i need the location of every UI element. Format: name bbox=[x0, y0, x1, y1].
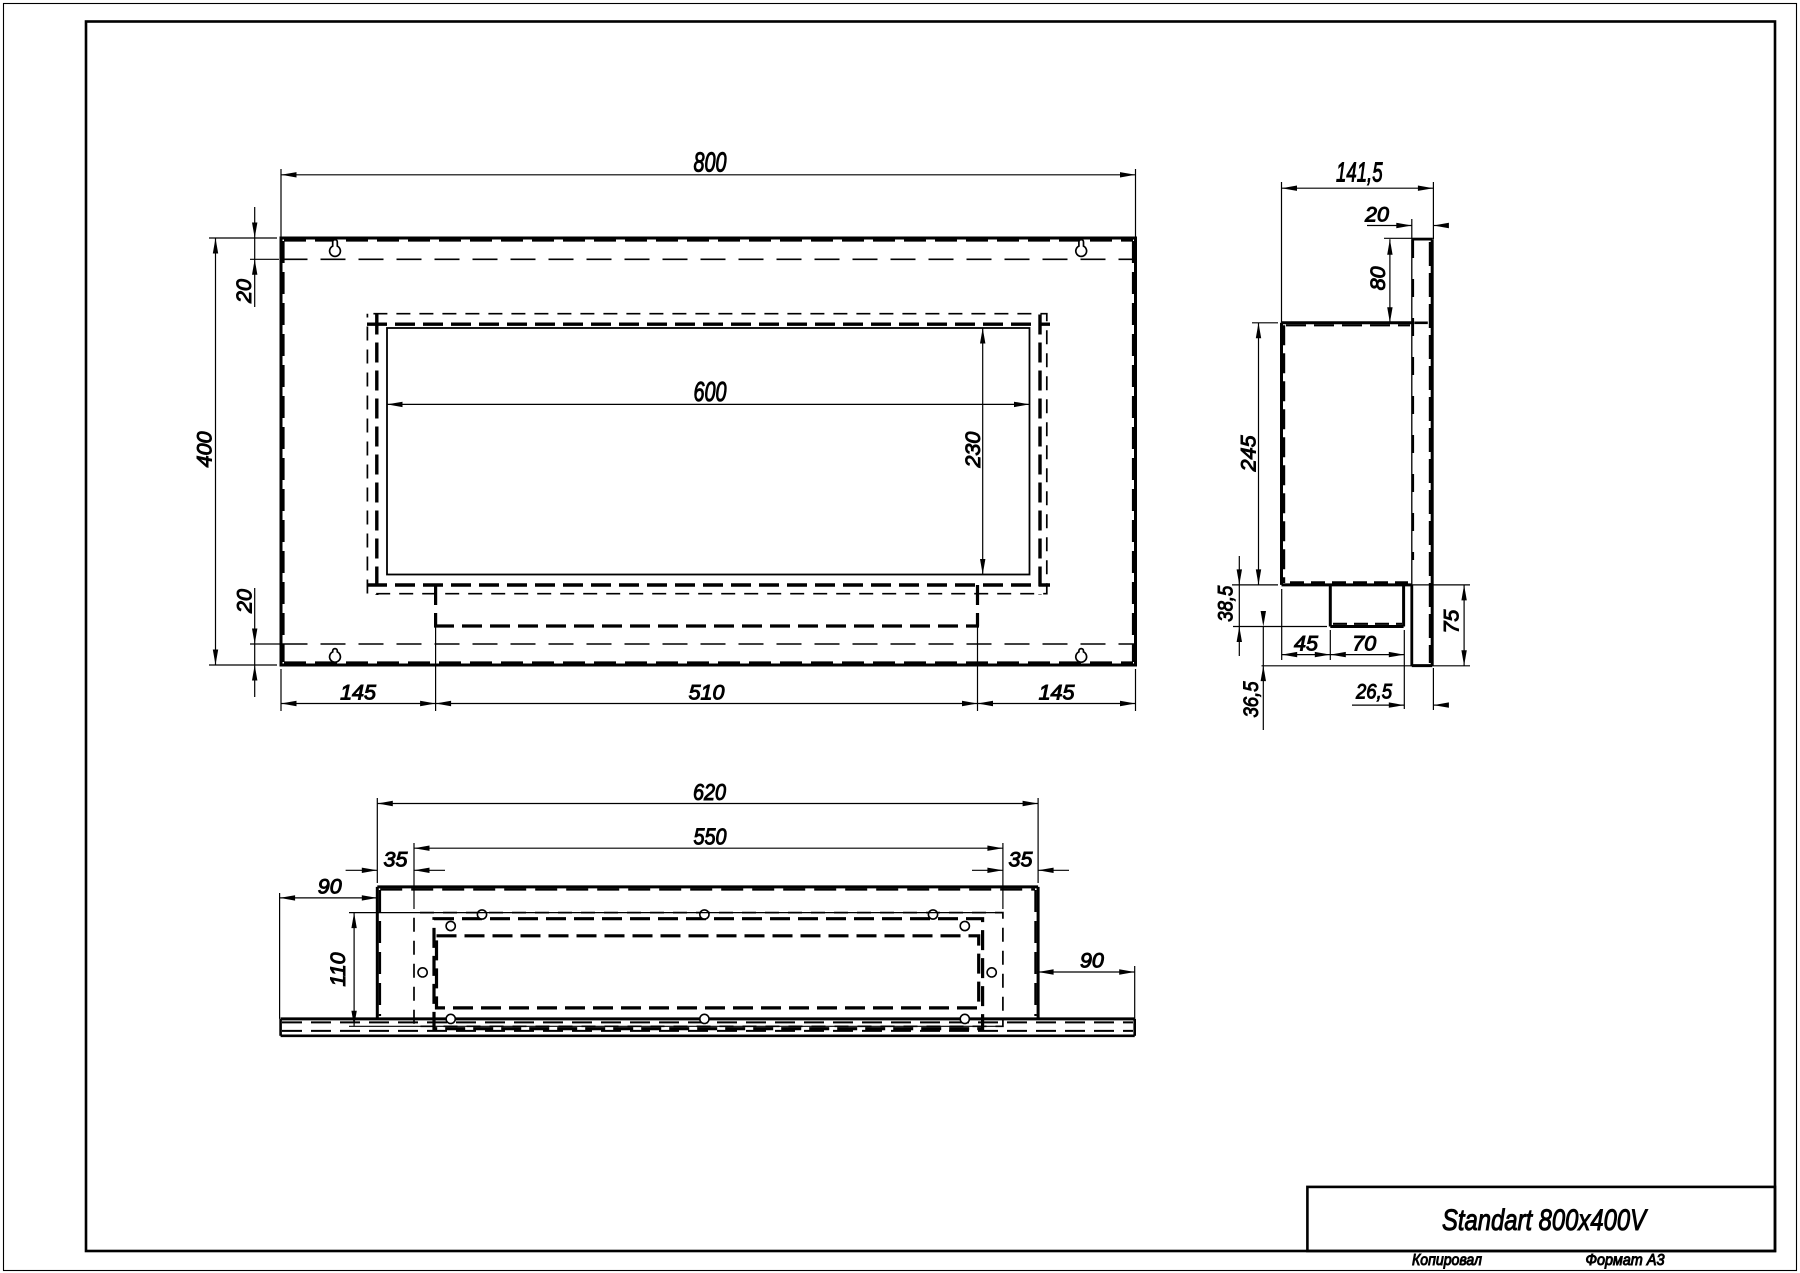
svg-text:510: 510 bbox=[689, 681, 725, 705]
svg-text:800: 800 bbox=[694, 147, 727, 178]
svg-text:35: 35 bbox=[384, 847, 409, 871]
svg-text:90: 90 bbox=[318, 875, 342, 899]
svg-text:70: 70 bbox=[1352, 632, 1376, 656]
svg-text:145: 145 bbox=[1039, 681, 1076, 705]
svg-text:Формат А3: Формат А3 bbox=[1586, 1252, 1665, 1269]
svg-text:145: 145 bbox=[340, 681, 377, 705]
svg-text:75: 75 bbox=[1440, 609, 1464, 634]
svg-text:38,5: 38,5 bbox=[1214, 585, 1238, 622]
svg-text:Копировал: Копировал bbox=[1412, 1252, 1482, 1269]
svg-text:26,5: 26,5 bbox=[1355, 680, 1393, 704]
svg-text:141,5: 141,5 bbox=[1336, 156, 1383, 187]
svg-text:20: 20 bbox=[233, 589, 257, 614]
svg-text:36,5: 36,5 bbox=[1239, 681, 1263, 718]
svg-text:Standart 800x400V: Standart 800x400V bbox=[1442, 1204, 1648, 1237]
svg-text:400: 400 bbox=[193, 431, 217, 467]
svg-text:90: 90 bbox=[1080, 949, 1104, 973]
svg-text:80: 80 bbox=[1366, 266, 1390, 290]
svg-text:110: 110 bbox=[326, 952, 350, 986]
svg-text:550: 550 bbox=[694, 824, 727, 850]
svg-text:35: 35 bbox=[1009, 847, 1034, 871]
svg-text:20: 20 bbox=[1364, 203, 1389, 227]
svg-text:45: 45 bbox=[1294, 632, 1319, 656]
svg-text:245: 245 bbox=[1237, 434, 1261, 472]
svg-text:230: 230 bbox=[961, 432, 985, 469]
svg-text:20: 20 bbox=[232, 279, 256, 304]
svg-text:600: 600 bbox=[694, 376, 727, 407]
svg-text:620: 620 bbox=[693, 779, 726, 805]
